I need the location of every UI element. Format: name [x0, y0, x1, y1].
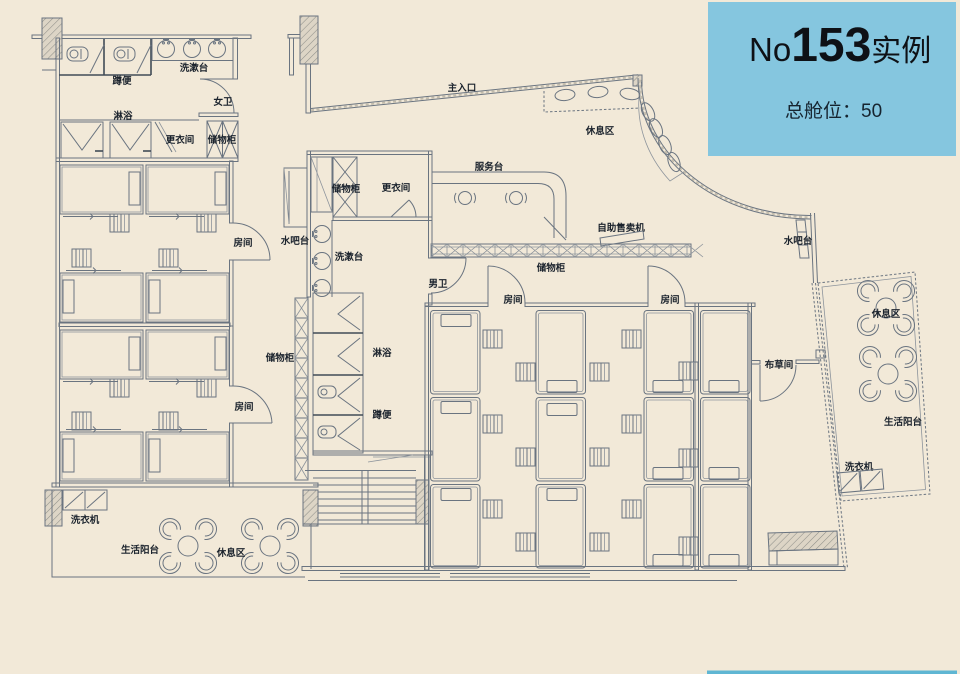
svg-text:洗漱台: 洗漱台: [180, 62, 209, 74]
svg-text:生活阳台: 生活阳台: [121, 544, 160, 556]
svg-text:蹲便: 蹲便: [372, 409, 392, 421]
svg-text:房间: 房间: [234, 401, 253, 413]
svg-text:水吧台: 水吧台: [281, 235, 310, 247]
svg-text:休息区: 休息区: [585, 125, 615, 137]
svg-text:储物柜: 储物柜: [537, 262, 566, 274]
svg-text:房间: 房间: [503, 294, 522, 306]
svg-text:储物柜: 储物柜: [266, 352, 295, 364]
svg-text:休息区: 休息区: [216, 547, 246, 559]
svg-text:生活阳台: 生活阳台: [884, 416, 923, 428]
svg-text:储物柜: 储物柜: [208, 134, 237, 146]
svg-text:布草间: 布草间: [764, 359, 794, 371]
svg-text:服务台: 服务台: [475, 161, 504, 173]
svg-text:蹲便: 蹲便: [112, 75, 132, 87]
svg-text:更衣间: 更衣间: [166, 134, 195, 146]
svg-text:总舱位：50: 总舱位：50: [785, 100, 882, 122]
svg-text:女卫: 女卫: [213, 96, 233, 108]
svg-text:休息区: 休息区: [871, 308, 901, 320]
svg-text:洗衣机: 洗衣机: [71, 514, 100, 526]
svg-text:男卫: 男卫: [428, 279, 448, 290]
svg-text:房间: 房间: [233, 237, 252, 249]
svg-text:洗漱台: 洗漱台: [335, 251, 364, 263]
svg-text:更衣间: 更衣间: [382, 182, 411, 194]
svg-text:淋浴: 淋浴: [113, 110, 133, 122]
svg-text:水吧台: 水吧台: [784, 235, 813, 247]
svg-text:淋浴: 淋浴: [372, 347, 392, 359]
svg-text:房间: 房间: [660, 294, 679, 306]
svg-text:储物柜: 储物柜: [332, 183, 361, 195]
